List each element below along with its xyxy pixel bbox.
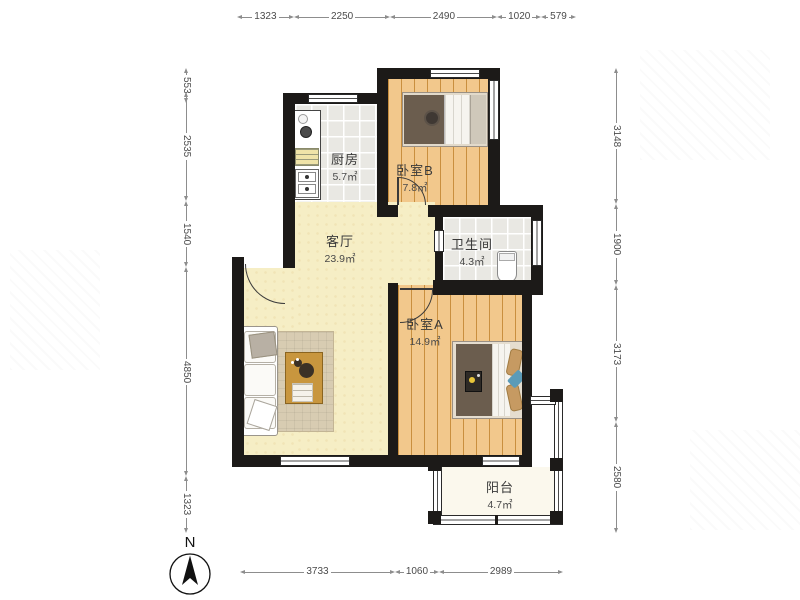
- balcony-post-bl: [428, 511, 441, 524]
- north-compass: N: [166, 535, 214, 600]
- dim-segment: 1060: [395, 567, 439, 577]
- lamp-icon: [469, 377, 475, 383]
- dim-value: 579: [548, 12, 569, 22]
- dim-segment: 1020: [497, 12, 541, 22]
- dim-segment: 2250: [294, 12, 391, 22]
- wall-bedroom-a-left: [388, 283, 398, 467]
- bed-b-sheet: [444, 95, 470, 144]
- bathroom-door: [434, 230, 444, 252]
- sofa-throw: [248, 331, 277, 358]
- dim-value: 2250: [329, 12, 355, 22]
- dim-segment: 3173: [611, 285, 621, 422]
- sink-basin-dot-1: [305, 175, 309, 179]
- bed-b-headboard: [470, 95, 486, 144]
- dimension-line-bottom: 3733 1060 2989: [240, 566, 563, 578]
- dim-segment: 2989: [439, 567, 563, 577]
- dim-value: 3148: [611, 123, 621, 149]
- dim-segment: 553: [181, 68, 191, 92]
- dim-segment: 3733: [240, 567, 395, 577]
- dim-segment: 1323: [237, 12, 294, 22]
- dim-segment: 1323: [181, 476, 191, 533]
- balcony-post-tl: [428, 458, 441, 471]
- balcony-wall-right: [554, 395, 563, 517]
- dim-segment: 2490: [390, 12, 497, 22]
- dim-value: 2535: [181, 133, 191, 159]
- bedroom-b-window-top: [430, 69, 480, 78]
- watermark: [690, 430, 800, 530]
- wall-bathroom-left-lower: [435, 251, 443, 280]
- wall-bathroom-top: [428, 205, 543, 217]
- balcony-post-tr: [550, 389, 563, 402]
- dim-value: 2490: [431, 12, 457, 22]
- north-label: N: [166, 535, 214, 550]
- balcony-wall-bottom: [433, 515, 563, 525]
- balcony-bottom-tick: [495, 515, 498, 525]
- dim-segment: 579: [541, 12, 566, 22]
- dimension-line-top: 1323 2250 2490 1020 579: [237, 11, 566, 23]
- dim-segment: 1900: [611, 204, 621, 286]
- balcony-post-br: [550, 511, 563, 524]
- balcony-wall-left: [433, 467, 442, 517]
- dim-value: 2989: [488, 567, 514, 577]
- living-window-bottom: [280, 456, 350, 466]
- lamp-dot-icon: [477, 374, 480, 377]
- wall-bathroom-left-upper: [435, 217, 443, 231]
- dim-value: 1060: [404, 567, 430, 577]
- dim-value: 1900: [611, 231, 621, 257]
- dim-segment: 2580: [611, 422, 621, 533]
- dim-value: 3733: [304, 567, 330, 577]
- wall-bedroom-b-bottom-left: [377, 205, 398, 217]
- dimension-line-left: 553 2535 1540 4850 1323: [180, 68, 192, 533]
- stove-burner-icon: [298, 114, 308, 124]
- wall-left-outer: [232, 257, 244, 467]
- toilet-tank: [499, 253, 515, 261]
- balcony-post-mid-right: [550, 458, 563, 471]
- bathroom-window: [532, 220, 542, 266]
- dim-segment: 4850: [181, 267, 191, 476]
- dim-value: 1540: [181, 221, 191, 247]
- bedroom-a-door-leaf: [400, 288, 433, 290]
- balcony-door-window: [482, 456, 520, 466]
- bedroom-b-door-leaf: [397, 177, 399, 205]
- dim-segment: 3148: [611, 68, 621, 204]
- bedroom-b-window-right: [489, 80, 499, 140]
- wall-kitchen-left: [283, 93, 295, 268]
- table-paper: [292, 383, 313, 402]
- wall-kitchen-bedroom-b-divider: [377, 68, 388, 205]
- watermark: [640, 50, 770, 160]
- floorplan-canvas: 厨房 5.7㎡ 卧室B 7.8㎡ 卫生间 4.3㎡ 客厅 23.9㎡ 卧室A 1…: [0, 0, 800, 600]
- kitchen-window: [308, 94, 358, 103]
- dimension-line-right: 3148 1900 3173 2580: [610, 68, 622, 533]
- dim-segment: 2535: [181, 92, 191, 201]
- stove-burner-dark-icon: [300, 126, 312, 138]
- dim-value: 1323: [181, 491, 191, 517]
- dim-value: 3173: [611, 341, 621, 367]
- dim-value: 1020: [506, 12, 532, 22]
- watermark: [10, 250, 100, 370]
- dim-segment: 1540: [181, 201, 191, 267]
- sink-basin-dot-2: [305, 187, 309, 191]
- wall-bedroom-a-right: [522, 283, 532, 467]
- dim-value: 4850: [181, 359, 191, 385]
- dim-value: 2580: [611, 464, 621, 490]
- kitchen-cabinet: [295, 148, 319, 166]
- dim-value: 1323: [252, 12, 278, 22]
- table-dot-1: [291, 361, 294, 364]
- north-arrow-icon: [168, 552, 212, 596]
- sofa-cushion-2: [244, 364, 276, 396]
- table-dot-2: [296, 358, 299, 361]
- balcony-floor: [436, 467, 562, 517]
- bed-b-cushion-icon: [424, 110, 440, 126]
- bathroom-floor: [443, 217, 531, 280]
- wall-bedroom-a-top: [433, 283, 532, 295]
